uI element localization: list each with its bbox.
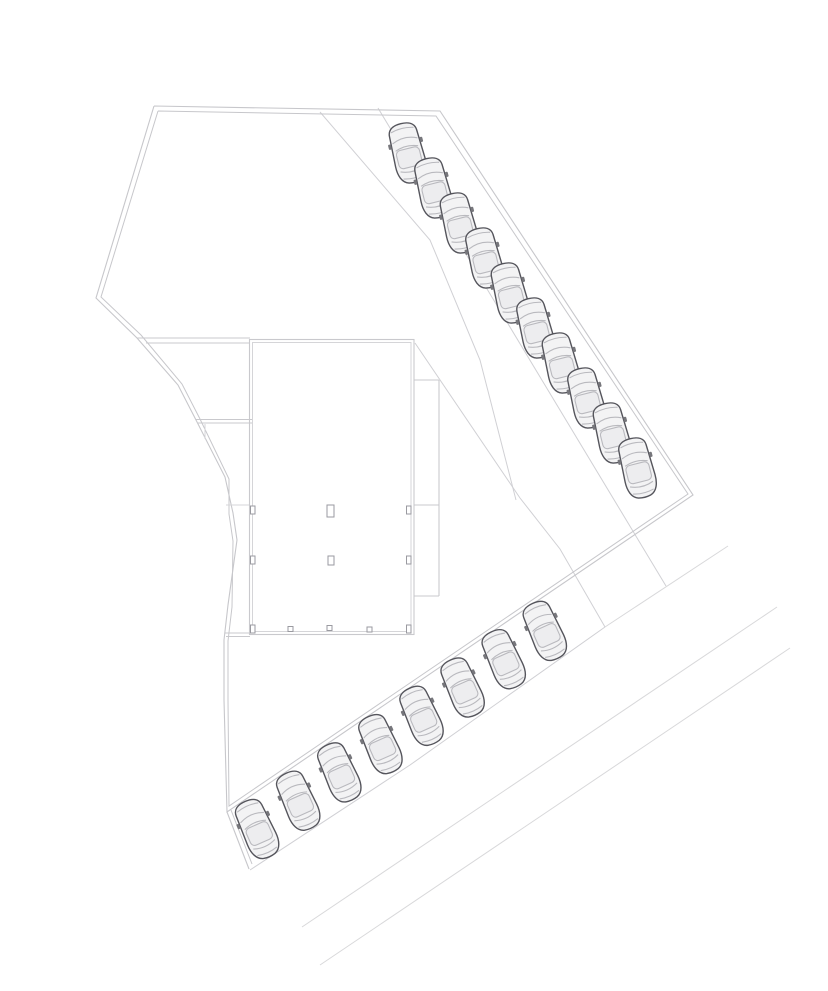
facade-mullion [288,627,293,632]
car-icon [434,653,491,722]
parked-cars [229,119,662,863]
boundary-inner-line [101,111,688,806]
boundary-outer-line [96,106,693,812]
site-plan-page [0,0,828,991]
wall-column [407,556,412,564]
car-icon-shape [352,709,409,778]
main-hall-inner-wall [253,343,412,632]
car-icon-shape [393,681,450,750]
south-row [229,596,573,864]
south-parking-edge-line [250,627,605,870]
northeast-row [384,119,662,501]
interior-column [328,556,334,565]
site-plan-drawing [0,0,828,991]
wall-column [251,556,256,564]
wall-column [251,506,256,514]
car-icon-shape [476,625,533,694]
car-icon-shape [311,738,368,807]
building-footprint [137,338,439,637]
road-line [605,546,728,627]
wall-column [407,625,412,633]
car-icon [393,681,450,750]
wall-column [251,625,256,633]
road-line [320,648,790,965]
interior-column [327,505,334,517]
main-hall-outer-wall [250,340,415,635]
car-icon [352,709,409,778]
car-icon-shape [434,653,491,722]
car-icon [311,738,368,807]
car-icon [476,625,533,694]
facade-mullion [367,627,372,632]
facade-mullion [327,626,332,631]
wall-column [407,506,412,514]
